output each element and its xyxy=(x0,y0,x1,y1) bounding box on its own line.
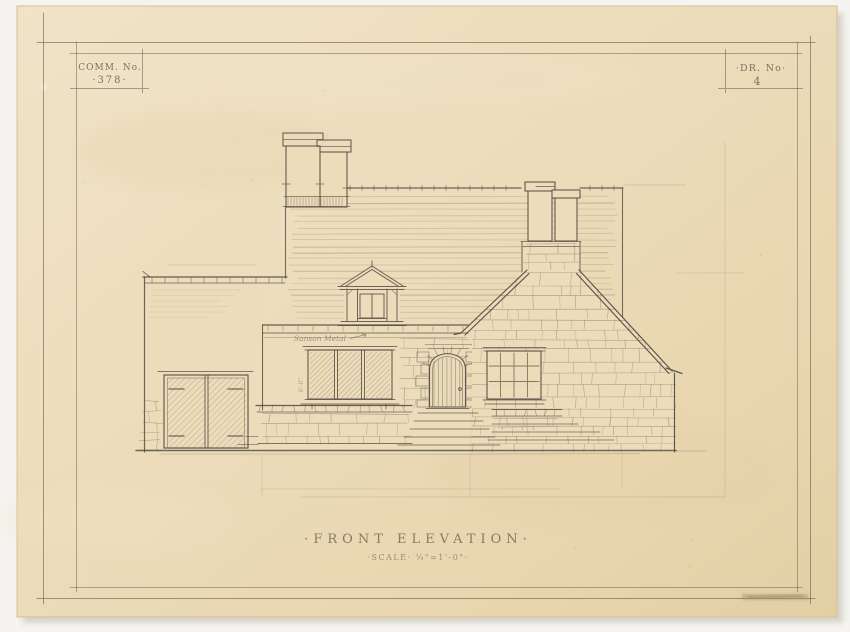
right-chimney-cap-2 xyxy=(552,190,580,198)
drawing-title: ·FRONT ELEVATION· xyxy=(304,532,532,547)
ground-line xyxy=(136,450,676,451)
main-wall: Sanson Metal 6'-0" xyxy=(260,324,479,454)
right-chimney xyxy=(521,182,581,274)
comm-number-label: COMM. No. xyxy=(78,63,141,73)
drawing-number-label: ·DR. No· xyxy=(736,63,786,74)
left-chimney xyxy=(282,133,351,207)
material-note-text: Sanson Metal xyxy=(294,334,347,343)
illegible-pencil-note xyxy=(742,594,808,600)
drawing-scale: ·SCALE· ¼"=1'-0"· xyxy=(367,553,468,562)
comm-number-value: ·378· xyxy=(92,75,127,86)
right-chimney-flue-2 xyxy=(555,198,577,241)
scanned-drawing-sheet: COMM. No. ·378· ·DR. No· 4 xyxy=(0,0,850,632)
left-chimney-cap-2 xyxy=(317,140,351,152)
drawing-number-value: 4 xyxy=(754,75,761,88)
paper-sheet xyxy=(0,6,843,623)
dimension-note: 6'-0" xyxy=(298,378,305,392)
gable-window xyxy=(483,348,546,405)
right-chimney-flue-1 xyxy=(528,191,552,241)
elevation-drawing-svg: COMM. No. ·378· ·DR. No· 4 xyxy=(0,0,850,632)
